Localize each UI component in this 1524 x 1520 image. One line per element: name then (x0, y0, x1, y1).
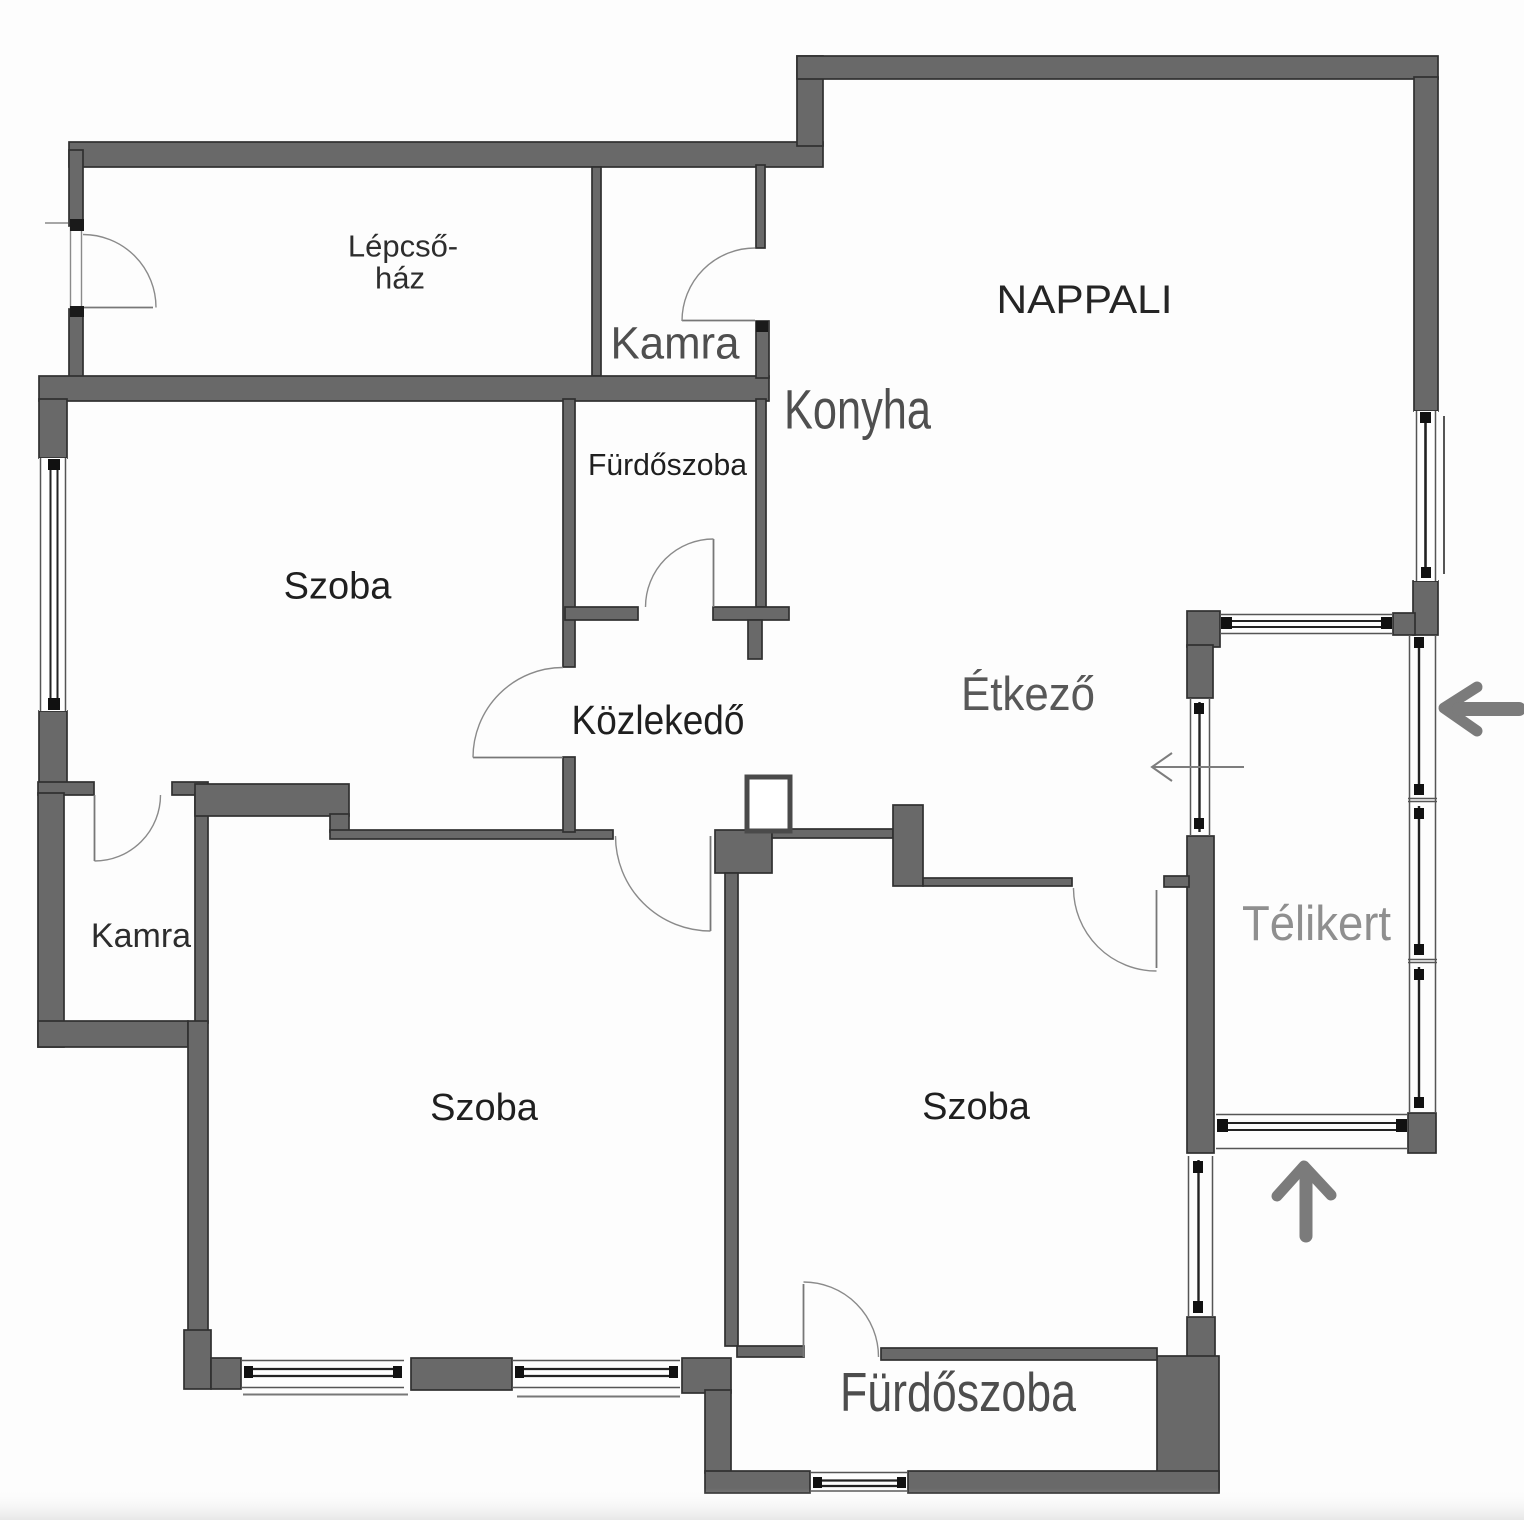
svg-text:Kamra: Kamra (611, 318, 741, 369)
svg-text:Közlekedő: Közlekedő (572, 697, 745, 743)
svg-text:Télikert: Télikert (1242, 897, 1391, 951)
svg-text:Fürdőszoba: Fürdőszoba (588, 447, 748, 482)
svg-text:Szoba: Szoba (430, 1087, 539, 1129)
svg-text:Kamra: Kamra (91, 917, 191, 955)
svg-text:ház: ház (375, 261, 425, 296)
svg-text:NAPPALI: NAPPALI (997, 278, 1173, 322)
svg-text:Szoba: Szoba (284, 566, 393, 608)
svg-text:Konyha: Konyha (784, 378, 932, 441)
svg-text:Szoba: Szoba (922, 1086, 1031, 1128)
svg-text:Fürdőszoba: Fürdőszoba (840, 1361, 1076, 1423)
svg-text:Lépcső-: Lépcső- (348, 229, 458, 264)
svg-text:Étkező: Étkező (961, 667, 1095, 720)
